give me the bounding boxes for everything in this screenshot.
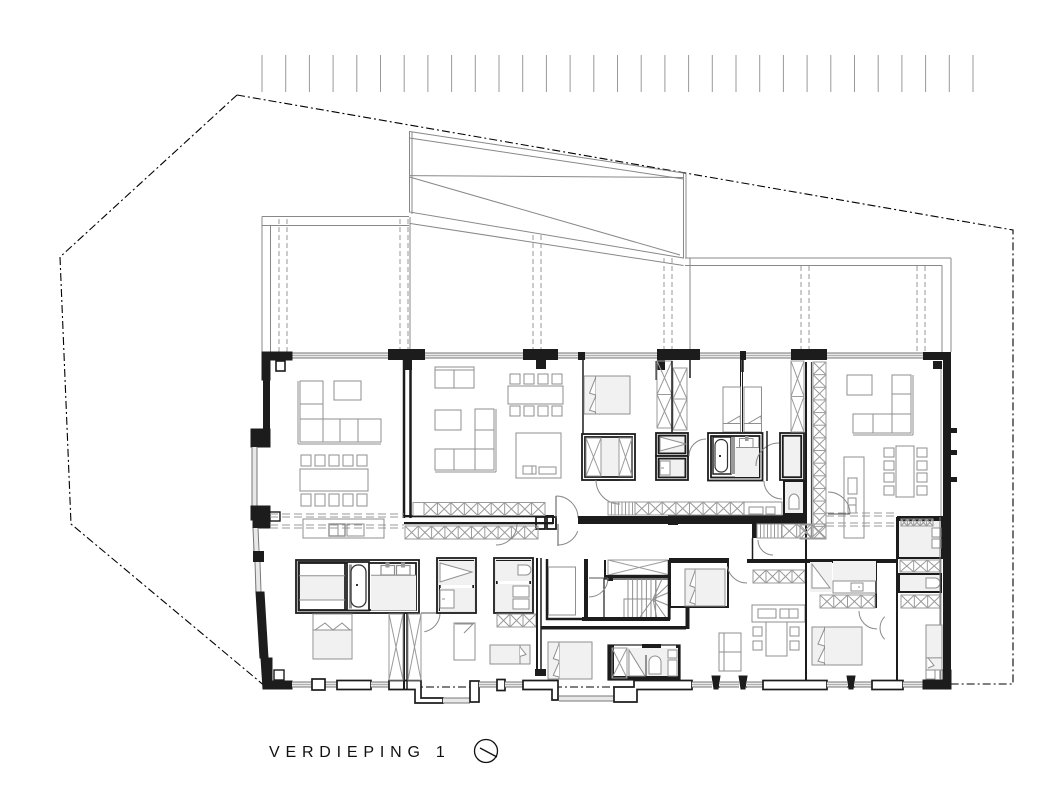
svg-text:VERDIEPING 1: VERDIEPING 1 <box>269 744 451 761</box>
